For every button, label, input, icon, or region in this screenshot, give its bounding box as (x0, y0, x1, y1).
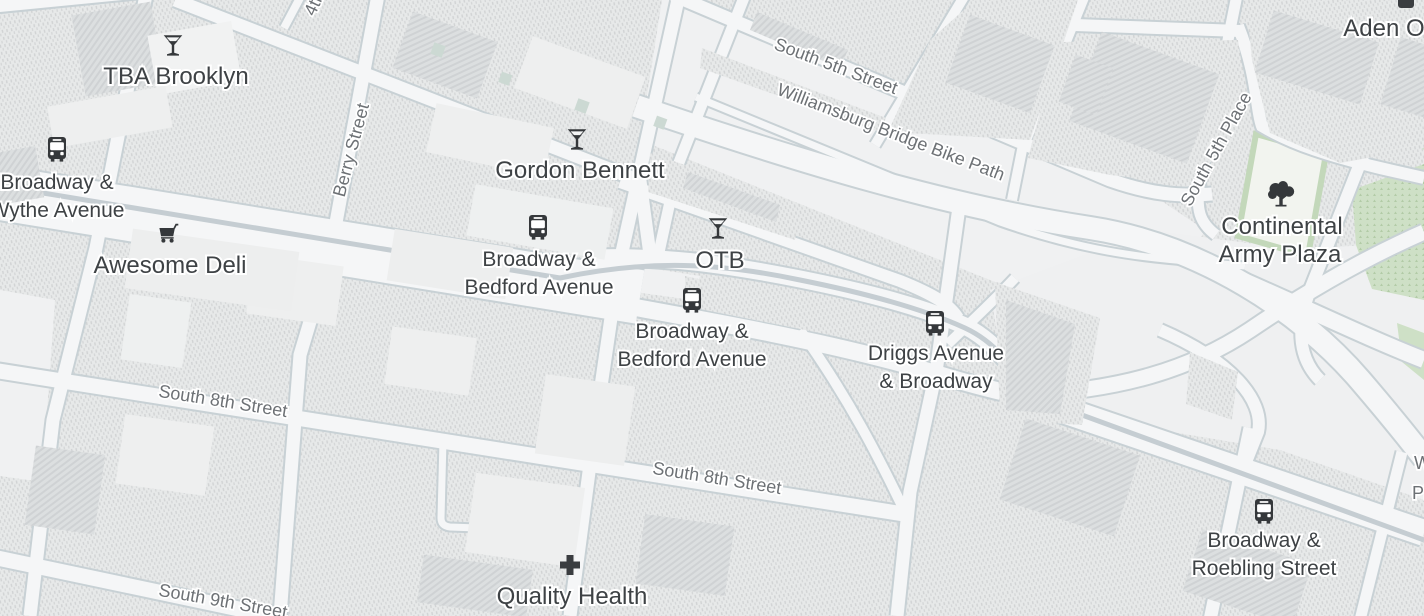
svg-text:Driggs Avenue: Driggs Avenue (868, 342, 1004, 365)
svg-text:& Broadway: & Broadway (879, 370, 993, 393)
svg-text:Quality Health: Quality Health (497, 583, 648, 610)
svg-text:Army Plaza: Army Plaza (1219, 241, 1342, 268)
svg-text:Broadway &: Broadway & (0, 171, 113, 194)
svg-text:Roebling Street: Roebling Street (1192, 557, 1337, 580)
svg-text:Gordon Bennett: Gordon Bennett (495, 157, 665, 184)
svg-text:TBA Brooklyn: TBA Brooklyn (103, 63, 248, 90)
svg-text:Broadway &: Broadway & (1207, 529, 1320, 552)
svg-text:Bedford Avenue: Bedford Avenue (464, 276, 613, 299)
svg-text:OTB: OTB (695, 247, 744, 274)
svg-text:Wythe Avenue: Wythe Avenue (0, 199, 124, 222)
svg-text:Broadway &: Broadway & (482, 248, 595, 271)
svg-text:Aden Or: Aden Or (1343, 15, 1424, 42)
svg-text:Pl: Pl (1412, 483, 1424, 503)
svg-text:Broadway &: Broadway & (635, 320, 748, 343)
svg-text:Bedford Avenue: Bedford Avenue (617, 348, 766, 371)
svg-text:Wi: Wi (1414, 453, 1424, 473)
svg-text:Awesome Deli: Awesome Deli (94, 252, 247, 279)
svg-text:Continental: Continental (1221, 213, 1342, 240)
